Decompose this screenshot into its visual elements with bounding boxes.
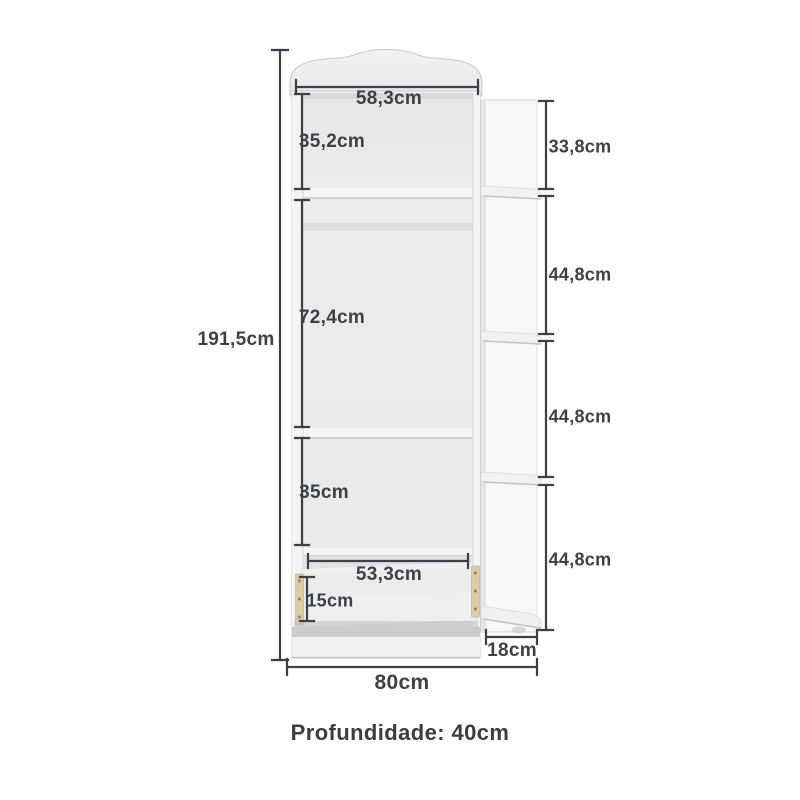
dim-label-top-inner-width: 58,3cm xyxy=(356,88,422,110)
dim-label-middle-section: 72,4cm xyxy=(299,307,365,329)
dim-label-drawer-height: 15cm xyxy=(306,591,353,612)
drawer-rail-left xyxy=(296,574,304,625)
side-shelf-unit xyxy=(481,100,541,634)
dim-label-top-section: 35,2cm xyxy=(299,131,365,153)
side-foot xyxy=(512,627,526,634)
dim-label-drawer-width: 53,3cm xyxy=(356,564,422,586)
cabinet-shelf-1 xyxy=(303,188,473,198)
dim-label-side-3: 44,8cm xyxy=(549,407,612,428)
side-back-panel xyxy=(481,100,537,632)
dim-label-lower-section: 35cm xyxy=(299,482,349,504)
cabinet-interior xyxy=(303,93,473,627)
drawer-rail-right xyxy=(472,566,480,617)
dim-line-total-height xyxy=(272,50,288,660)
dim-label-side-2: 44,8cm xyxy=(549,265,612,286)
side-panel-shadow xyxy=(481,100,486,632)
depth-note: Profundidade: 40cm xyxy=(291,720,510,746)
dim-label-total-width: 80cm xyxy=(375,671,430,695)
diagram-canvas: 191,5cm 58,3cm 35,2cm 72,4cm 35cm 53,3cm… xyxy=(0,0,800,800)
cabinet-shelf-3 xyxy=(303,548,473,556)
cabinet-base xyxy=(292,627,480,658)
cabinet-shelf-2 xyxy=(303,428,473,438)
dim-label-side-width: 18cm xyxy=(487,640,537,662)
dim-label-total-height: 191,5cm xyxy=(197,329,274,351)
dim-label-side-4: 44,8cm xyxy=(549,550,612,571)
dim-label-side-top: 33,8cm xyxy=(549,137,612,158)
hanging-rod xyxy=(303,218,473,231)
